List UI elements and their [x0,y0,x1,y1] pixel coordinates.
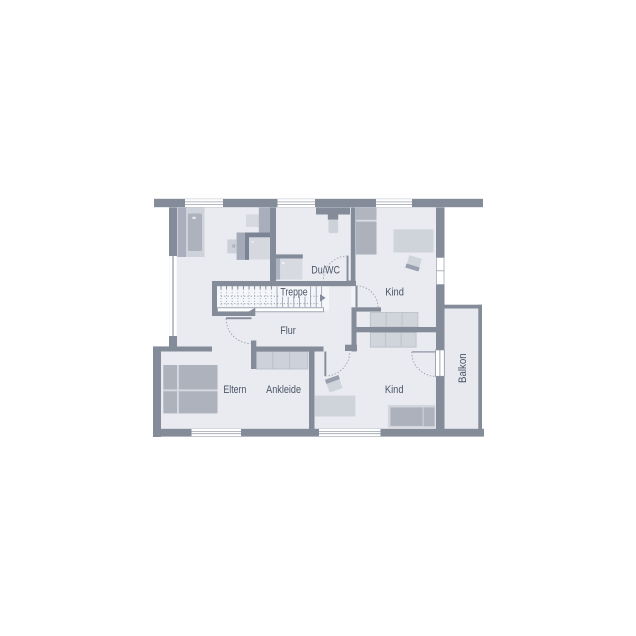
svg-text:Du/WC: Du/WC [311,264,340,276]
svg-text:Balkon: Balkon [457,353,469,383]
svg-text:Kind: Kind [385,384,404,396]
svg-text:Eltern: Eltern [223,384,246,396]
svg-text:Flur: Flur [280,325,296,337]
svg-text:Treppe: Treppe [280,287,307,299]
svg-text:Ankleide: Ankleide [266,384,301,396]
svg-text:Kind: Kind [385,286,404,298]
